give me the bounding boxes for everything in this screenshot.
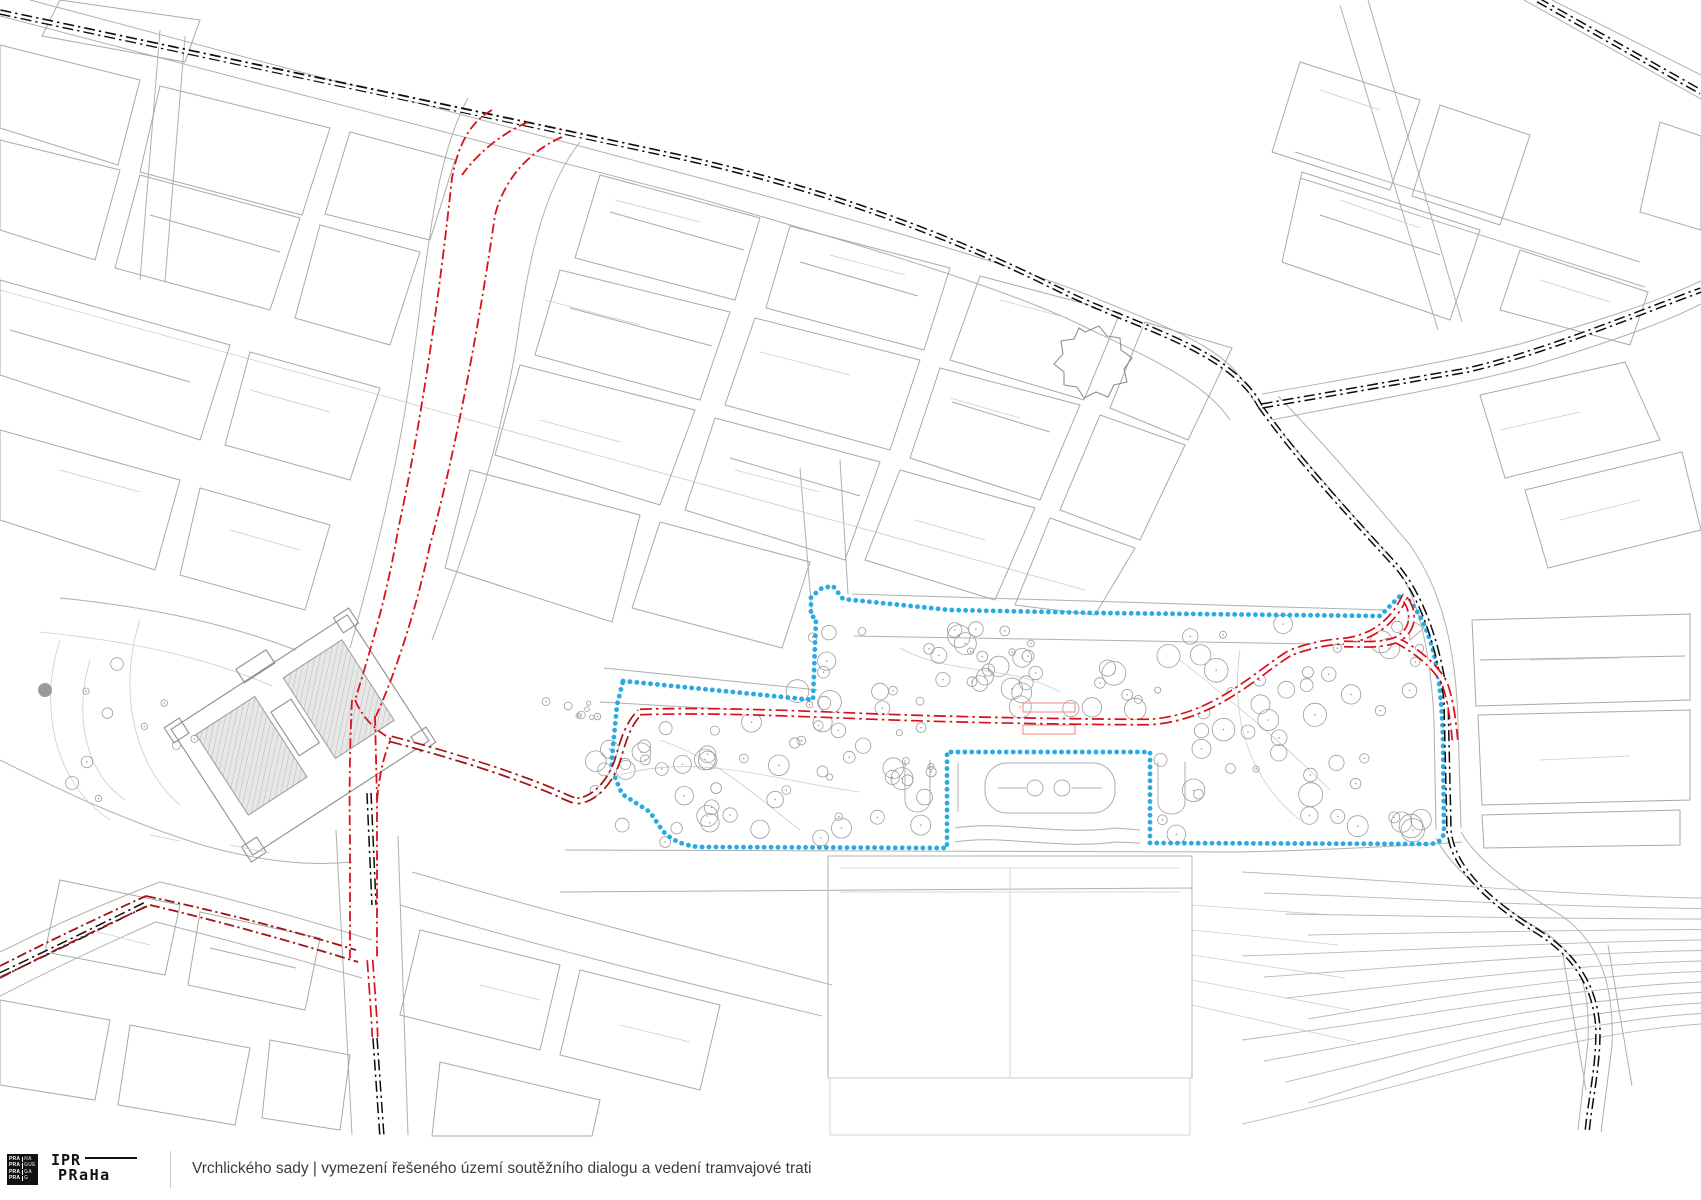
logo-row: PRAG [9,1176,38,1181]
city-blocks [0,0,1701,1136]
ipr-wordmark: IPR PRaHa [51,1154,143,1185]
ipr-wordmark-line2: PRaHa [58,1166,111,1184]
railway-tracks [1242,872,1701,1124]
city-plan-map [0,0,1701,1200]
ipr-wordmark-dash [85,1157,137,1160]
church-building [1054,326,1132,398]
street-edges [0,0,1701,1135]
national-museum [159,600,436,862]
base-map [0,0,1701,1136]
logo-row: PRAGUE [9,1163,38,1168]
ipr-praha-logo: PRAHA PRAGUE PRAGA PRAG [7,1154,38,1185]
footer-bar: PRAHA PRAGUE PRAGA PRAG IPR PRaHa Vrchli… [0,1138,1701,1200]
map-title: Vrchlického sady | vymezení řešeného úze… [192,1160,811,1178]
ipr-wordmark-line1: IPR [51,1154,81,1167]
study-area-boundary [612,586,1444,848]
railway-station [828,760,1355,1135]
existing-tram-lines [0,0,1701,1137]
proposed-tram-lines [0,110,1455,1037]
footer-divider [170,1151,171,1188]
